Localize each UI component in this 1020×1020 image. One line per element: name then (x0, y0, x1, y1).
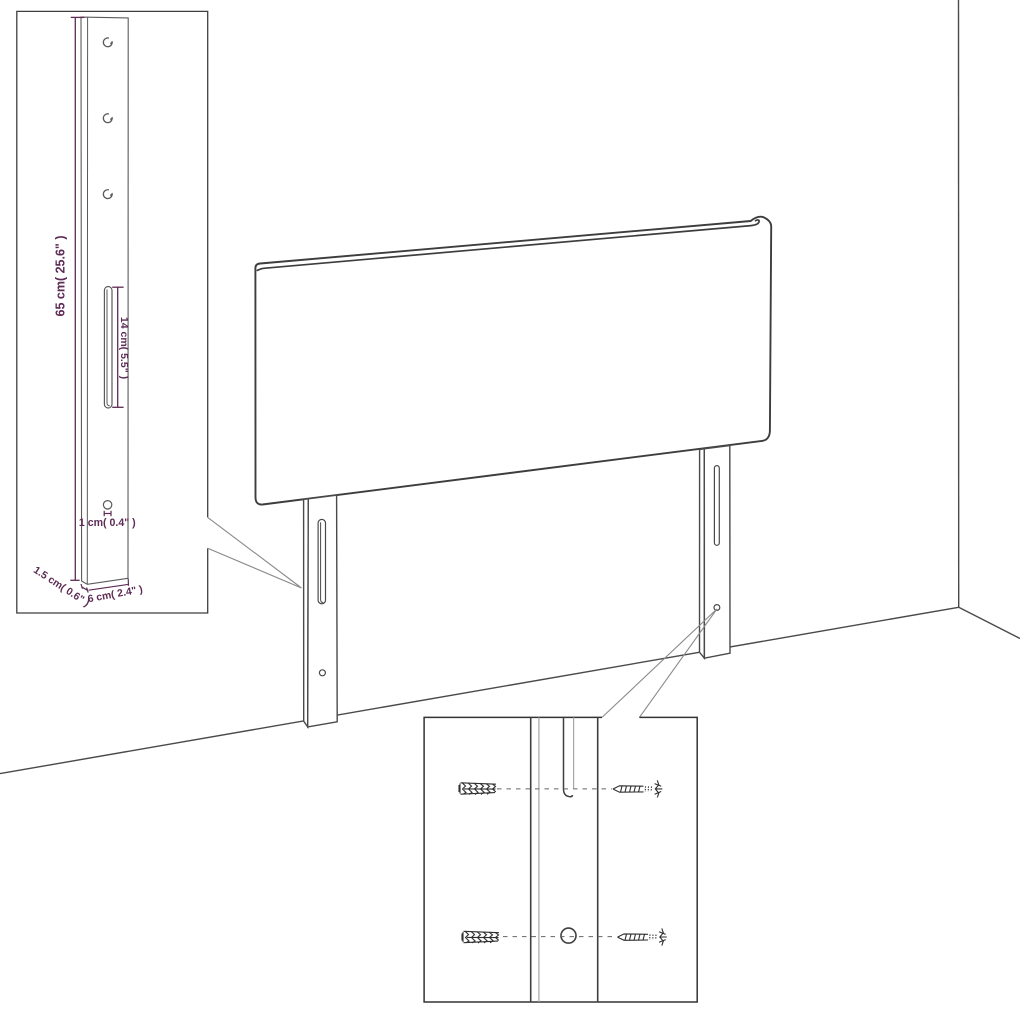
svg-text:1 cm( 0.4" ): 1 cm( 0.4" ) (79, 517, 136, 529)
svg-text:65 cm( 25.6" ): 65 cm( 25.6" ) (54, 236, 68, 317)
svg-text:14 cm( 5.5" ): 14 cm( 5.5" ) (118, 317, 130, 379)
svg-text:6 cm( 2.4" ): 6 cm( 2.4" ) (87, 584, 144, 605)
